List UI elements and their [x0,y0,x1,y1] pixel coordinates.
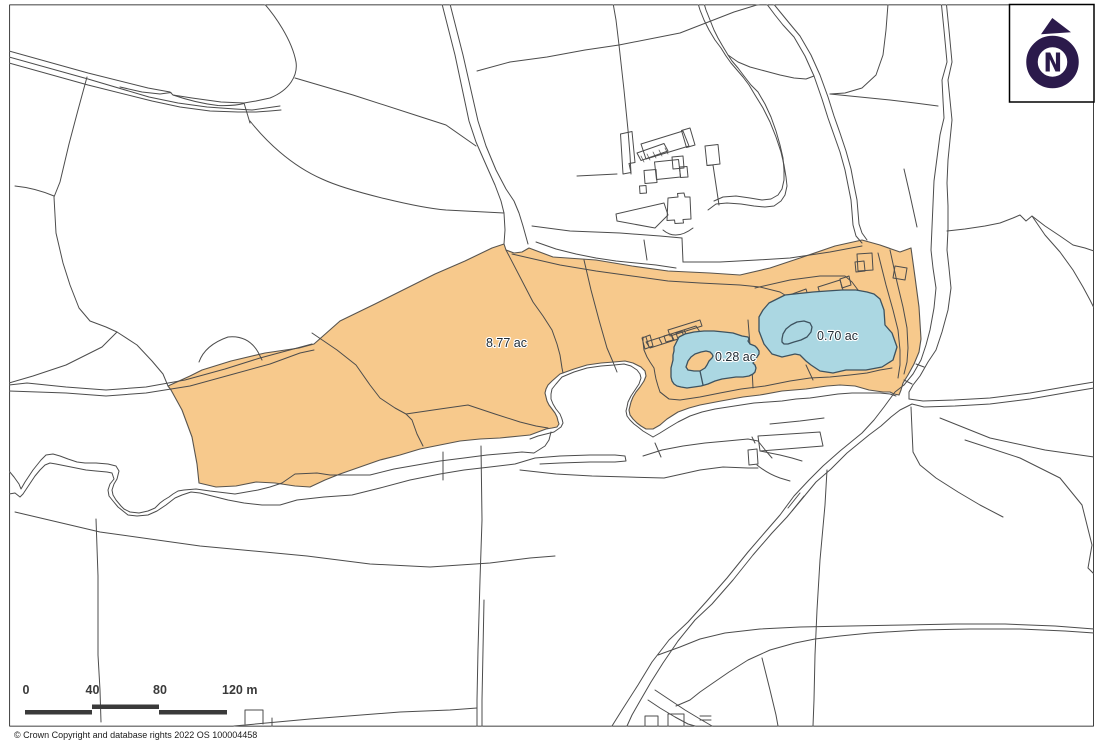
svg-text:8.77 ac: 8.77 ac [486,336,527,350]
svg-text:0.28 ac: 0.28 ac [715,350,756,364]
svg-text:0.70 ac: 0.70 ac [817,329,858,343]
svg-text:80: 80 [153,683,167,697]
svg-text:40: 40 [86,683,100,697]
svg-text:120 m: 120 m [222,683,257,697]
svg-text:0: 0 [23,683,30,697]
svg-text:© Crown Copyright and database: © Crown Copyright and database rights 20… [14,730,257,740]
